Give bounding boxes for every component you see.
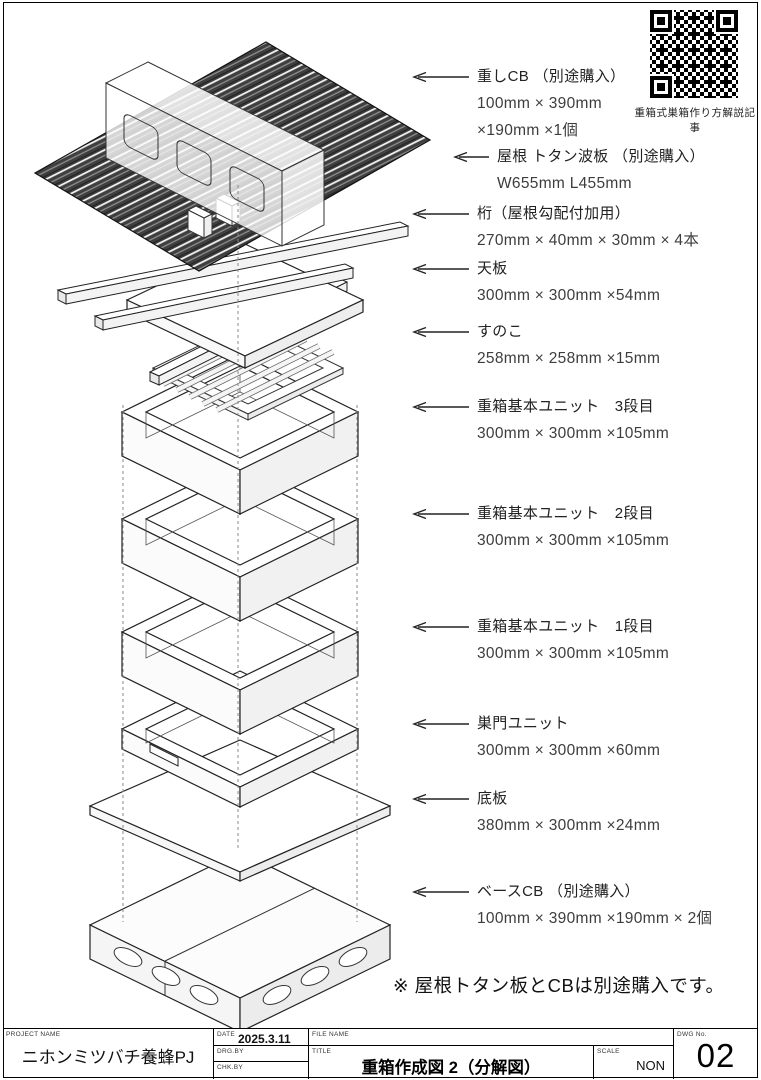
date-value: 2025.3.11: [238, 1032, 291, 1046]
leader-arrow-icon: [412, 507, 470, 521]
part-dims: W655mm L455mm: [497, 170, 761, 197]
leader-arrow-icon: [453, 150, 490, 164]
title-cell: TITLE 重箱作成図 2（分解図）: [308, 1046, 593, 1079]
file-name-cell: FILE NAME: [308, 1029, 673, 1046]
part-dims: 300mm × 300mm ×105mm: [477, 527, 757, 554]
label-weight-cb: 重しCB （別途購入） 100mm × 390mm ×190mm ×1個: [477, 67, 757, 144]
leader-arrow-icon: [412, 400, 470, 414]
drg-by-label: DRG.BY: [217, 1048, 244, 1055]
part-name: 巣門ユニット: [477, 714, 757, 734]
leader-arrow-icon: [412, 207, 470, 221]
drawing-sheet: 重箱式巣箱作り方解説記事 重しCB （別途購入） 100mm × 390mm ×…: [0, 0, 761, 1080]
dwg-no-cell: DWG No. 02: [673, 1029, 758, 1079]
scale-value: NON: [594, 1058, 665, 1073]
scale-label: SCALE: [597, 1048, 620, 1055]
leader-arrow-icon: [412, 70, 470, 84]
leader-arrow-icon: [412, 885, 470, 899]
scale-cell: SCALE NON: [593, 1046, 673, 1079]
part-name: すのこ: [477, 322, 757, 342]
part-dims: 300mm × 300mm ×105mm: [477, 640, 757, 667]
title-block: PROJECT NAME ニホンミツバチ養蜂PJ DATE 2025.3.11 …: [3, 1028, 758, 1079]
part-name: 重箱基本ユニット 2段目: [477, 504, 757, 524]
part-dims: 258mm × 258mm ×15mm: [477, 345, 757, 372]
part-dims: 300mm × 300mm ×105mm: [477, 420, 757, 447]
chk-by-cell: CHK.BY: [213, 1062, 308, 1079]
bottom-board: [90, 740, 390, 881]
label-base-cb: ベースCB （別途購入） 100mm × 390mm ×190mm × 2個: [477, 882, 757, 932]
part-name: 重箱基本ユニット 1段目: [477, 617, 757, 637]
leader-arrow-icon: [412, 620, 470, 634]
purchase-note: ※ 屋根トタン板とCBは別途購入です。: [393, 972, 753, 998]
part-dims: 380mm × 300mm ×24mm: [477, 812, 757, 839]
part-name: 底板: [477, 789, 757, 809]
label-unit-1: 重箱基本ユニット 1段目 300mm × 300mm ×105mm: [477, 617, 757, 667]
part-dims: 100mm × 390mm ×190mm ×1個: [477, 90, 757, 144]
project-value: ニホンミツバチ養蜂PJ: [3, 1043, 213, 1068]
part-name: 桁（屋根勾配付加用）: [477, 204, 757, 224]
label-sunoko: すのこ 258mm × 258mm ×15mm: [477, 322, 757, 372]
label-entrance-unit: 巣門ユニット 300mm × 300mm ×60mm: [477, 714, 757, 764]
part-dims: 270mm × 40mm × 30mm × 4本: [477, 227, 757, 254]
label-top-board: 天板 300mm × 300mm ×54mm: [477, 259, 757, 309]
part-name: ベースCB （別途購入）: [477, 882, 757, 902]
leader-arrow-icon: [412, 325, 470, 339]
label-bottom-board: 底板 380mm × 300mm ×24mm: [477, 789, 757, 839]
part-name: 天板: [477, 259, 757, 279]
part-name: 屋根 トタン波板 （別途購入）: [497, 147, 761, 167]
date-label: DATE: [217, 1031, 235, 1038]
file-name-label: FILE NAME: [312, 1031, 349, 1038]
leader-arrow-icon: [412, 792, 470, 806]
chk-by-label: CHK.BY: [217, 1064, 243, 1071]
dwg-no-value: 02: [674, 1037, 758, 1075]
leader-arrow-icon: [412, 262, 470, 276]
drawing-title: 重箱作成図 2（分解図）: [309, 1054, 593, 1078]
drg-by-cell: DRG.BY: [213, 1046, 308, 1062]
label-unit-2: 重箱基本ユニット 2段目 300mm × 300mm ×105mm: [477, 504, 757, 554]
part-dims: 300mm × 300mm ×54mm: [477, 282, 757, 309]
label-unit-3: 重箱基本ユニット 3段目 300mm × 300mm ×105mm: [477, 397, 757, 447]
project-label: PROJECT NAME: [6, 1031, 60, 1038]
part-dims: 100mm × 390mm ×190mm × 2個: [477, 905, 757, 932]
leader-arrow-icon: [412, 717, 470, 731]
label-roof: 屋根 トタン波板 （別途購入） W655mm L455mm: [497, 147, 761, 197]
part-name: 重しCB （別途購入）: [477, 67, 757, 87]
part-dims: 300mm × 300mm ×60mm: [477, 737, 757, 764]
date-cell: DATE 2025.3.11: [213, 1029, 308, 1046]
label-girders: 桁（屋根勾配付加用） 270mm × 40mm × 30mm × 4本: [477, 204, 757, 254]
project-cell: PROJECT NAME ニホンミツバチ養蜂PJ: [3, 1029, 213, 1079]
part-name: 重箱基本ユニット 3段目: [477, 397, 757, 417]
